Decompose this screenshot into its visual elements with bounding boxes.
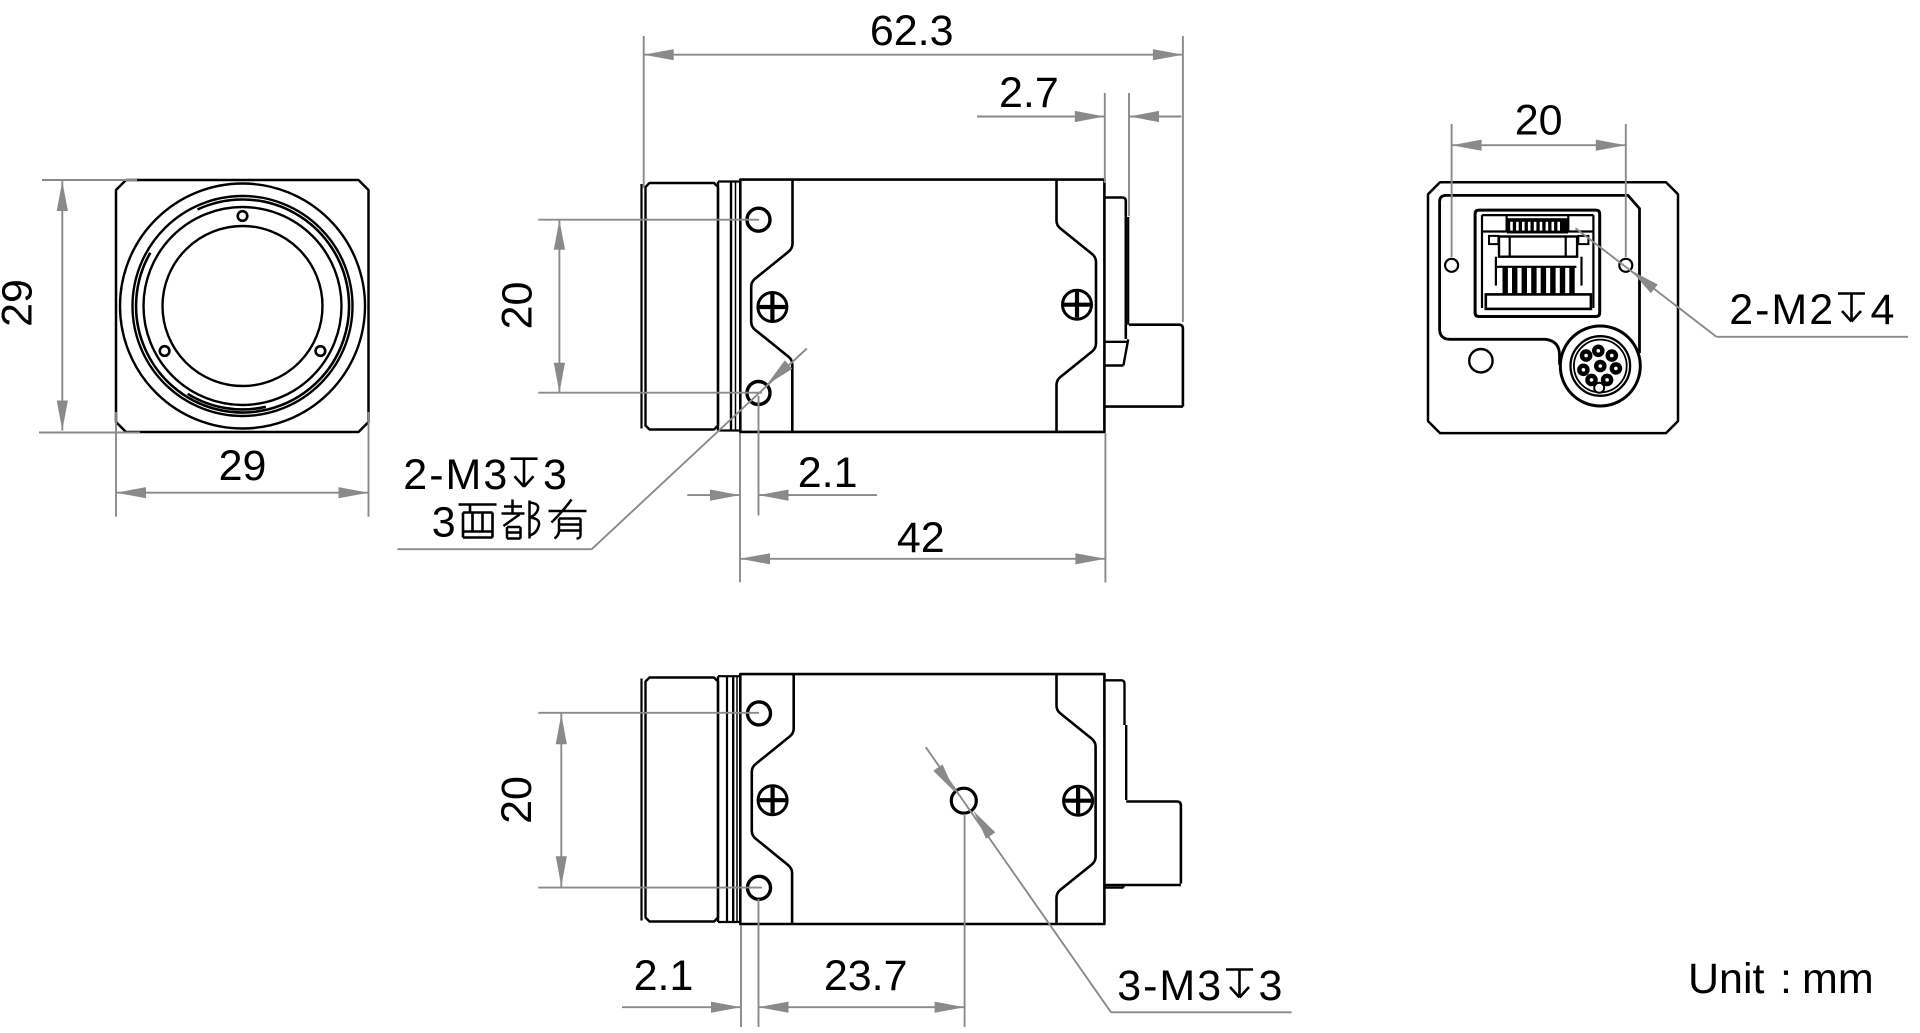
svg-text:29: 29 — [219, 442, 267, 490]
svg-text:62.3: 62.3 — [870, 7, 954, 55]
svg-text:2-M3: 2-M3 — [403, 451, 509, 499]
svg-text:20: 20 — [493, 776, 541, 824]
svg-text:3: 3 — [432, 499, 456, 547]
svg-text:20: 20 — [494, 282, 542, 330]
svg-text:Unit: Unit — [1688, 955, 1765, 1003]
svg-text:23.7: 23.7 — [824, 952, 908, 1000]
svg-text:2.7: 2.7 — [999, 69, 1059, 117]
svg-text:42: 42 — [897, 514, 945, 562]
svg-text:3-M3: 3-M3 — [1117, 962, 1223, 1010]
svg-text:mm: mm — [1802, 955, 1874, 1003]
svg-text:3: 3 — [543, 451, 567, 499]
svg-text:2-M2: 2-M2 — [1729, 286, 1835, 334]
svg-text:2.1: 2.1 — [798, 449, 858, 497]
svg-text:2.1: 2.1 — [634, 952, 694, 1000]
svg-text:29: 29 — [0, 279, 42, 327]
svg-text:4: 4 — [1871, 286, 1895, 334]
svg-text:3: 3 — [1259, 962, 1283, 1010]
svg-text:20: 20 — [1515, 97, 1563, 145]
svg-text::: : — [1780, 955, 1792, 1003]
